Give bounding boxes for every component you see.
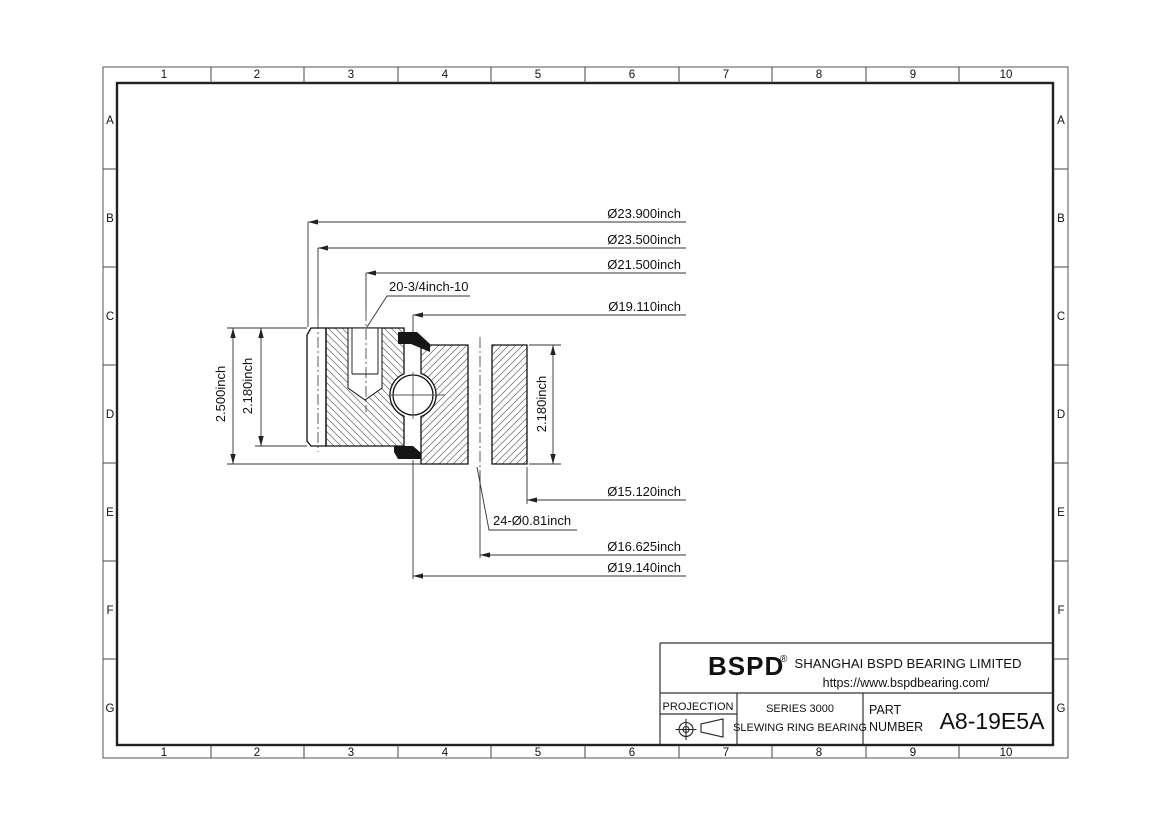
- dim-label-race-lower: Ø19.140inch: [607, 560, 681, 575]
- grid-column-label: 8: [816, 69, 822, 81]
- part-label-line1: PART: [869, 703, 902, 717]
- grid-column-label: 1: [161, 69, 167, 81]
- note-tapped-holes: 20-3/4inch-10: [389, 279, 469, 294]
- series-line2: SLEWING RING BEARING: [733, 722, 867, 734]
- grid-column-label: 4: [442, 747, 449, 759]
- drawing-sheet: 1 2 3 4 5 6 7 8 9 10 1 2 3 4 5 6 7 8 9 1…: [0, 0, 1170, 827]
- grid-column-label: 9: [910, 747, 916, 759]
- drawing-border: [117, 83, 1053, 745]
- tapped-hole-leader: [367, 296, 470, 327]
- grid-row-label: C: [106, 311, 114, 323]
- dim-label-bolt-circle-inner: Ø16.625inch: [607, 539, 681, 554]
- part-number-value: A8-19E5A: [940, 708, 1046, 734]
- title-block: BSPD ® SHANGHAI BSPD BEARING LIMITED htt…: [660, 643, 1053, 745]
- outer-ring-gear-band: [307, 328, 326, 446]
- grid-row-label: E: [1057, 507, 1065, 519]
- grid-column-label: 10: [1000, 747, 1013, 759]
- grid-row-label: E: [106, 507, 114, 519]
- dim-label-overall-height: 2.500inch: [213, 366, 228, 422]
- grid-columns-top: 1 2 3 4 5 6 7 8 9 10: [161, 69, 1013, 81]
- grid-column-label: 2: [254, 747, 260, 759]
- company-website: https://www.bspdbearing.com/: [823, 676, 990, 690]
- engineering-drawing: 1 2 3 4 5 6 7 8 9 10 1 2 3 4 5 6 7 8 9 1…: [0, 0, 1170, 827]
- tapped-hole: [348, 328, 382, 400]
- grid-row-label: D: [106, 409, 114, 421]
- grid-column-label: 6: [629, 747, 635, 759]
- grid-column-label: 3: [348, 69, 354, 81]
- grid-column-label: 7: [723, 747, 729, 759]
- dim-label-bolt-circle-outer: Ø21.500inch: [607, 257, 681, 272]
- dim-label-bore: Ø15.120inch: [607, 484, 681, 499]
- grid-row-label: D: [1057, 409, 1065, 421]
- grid-row-label: C: [1057, 311, 1065, 323]
- lower-seal: [394, 446, 421, 459]
- grid-column-label: 2: [254, 69, 260, 81]
- registered-mark: ®: [780, 654, 788, 665]
- dim-label-race-upper: Ø19.110inch: [608, 299, 681, 314]
- grid-column-label: 1: [161, 747, 167, 759]
- company-name: SHANGHAI BSPD BEARING LIMITED: [794, 656, 1021, 671]
- grid-row-label: F: [106, 605, 113, 617]
- grid-column-label: 7: [723, 69, 729, 81]
- projection-symbol-icon: [676, 719, 724, 740]
- grid-row-label: G: [106, 703, 115, 715]
- grid-row-label: F: [1057, 605, 1064, 617]
- grid-column-label: 3: [348, 747, 354, 759]
- grid-row-label: G: [1057, 703, 1066, 715]
- grid-column-label: 5: [535, 69, 541, 81]
- grid-column-label: 8: [816, 747, 822, 759]
- grid-column-label: 4: [442, 69, 449, 81]
- grid-column-label: 10: [1000, 69, 1013, 81]
- grid-columns-bottom: 1 2 3 4 5 6 7 8 9 10: [161, 747, 1013, 759]
- note-through-holes: 24-Ø0.81inch: [493, 513, 571, 528]
- grid-row-label: B: [106, 213, 114, 225]
- projection-label: PROJECTION: [663, 701, 734, 713]
- part-label-line2: NUMBER: [869, 720, 923, 734]
- grid-rows-right: A B C D E F G: [1057, 115, 1066, 715]
- bearing-section-view: [307, 310, 527, 472]
- dim-label-inner-ring-height: 2.180inch: [534, 376, 549, 432]
- grid-column-label: 5: [535, 747, 541, 759]
- dim-label-outer-ring-height: 2.180inch: [240, 358, 255, 414]
- grid-column-label: 9: [910, 69, 916, 81]
- inner-ring-section-right: [492, 345, 527, 464]
- grid-row-label: A: [106, 115, 114, 127]
- grid-rows-left: A B C D E F G: [106, 115, 115, 715]
- dim-label-pitch-od: Ø23.500inch: [607, 232, 681, 247]
- company-logo: BSPD: [708, 651, 784, 681]
- grid-row-label: A: [1057, 115, 1065, 127]
- series-line1: SERIES 3000: [766, 703, 834, 715]
- grid-column-label: 6: [629, 69, 635, 81]
- dim-label-od: Ø23.900inch: [607, 206, 681, 221]
- grid-row-label: B: [1057, 213, 1065, 225]
